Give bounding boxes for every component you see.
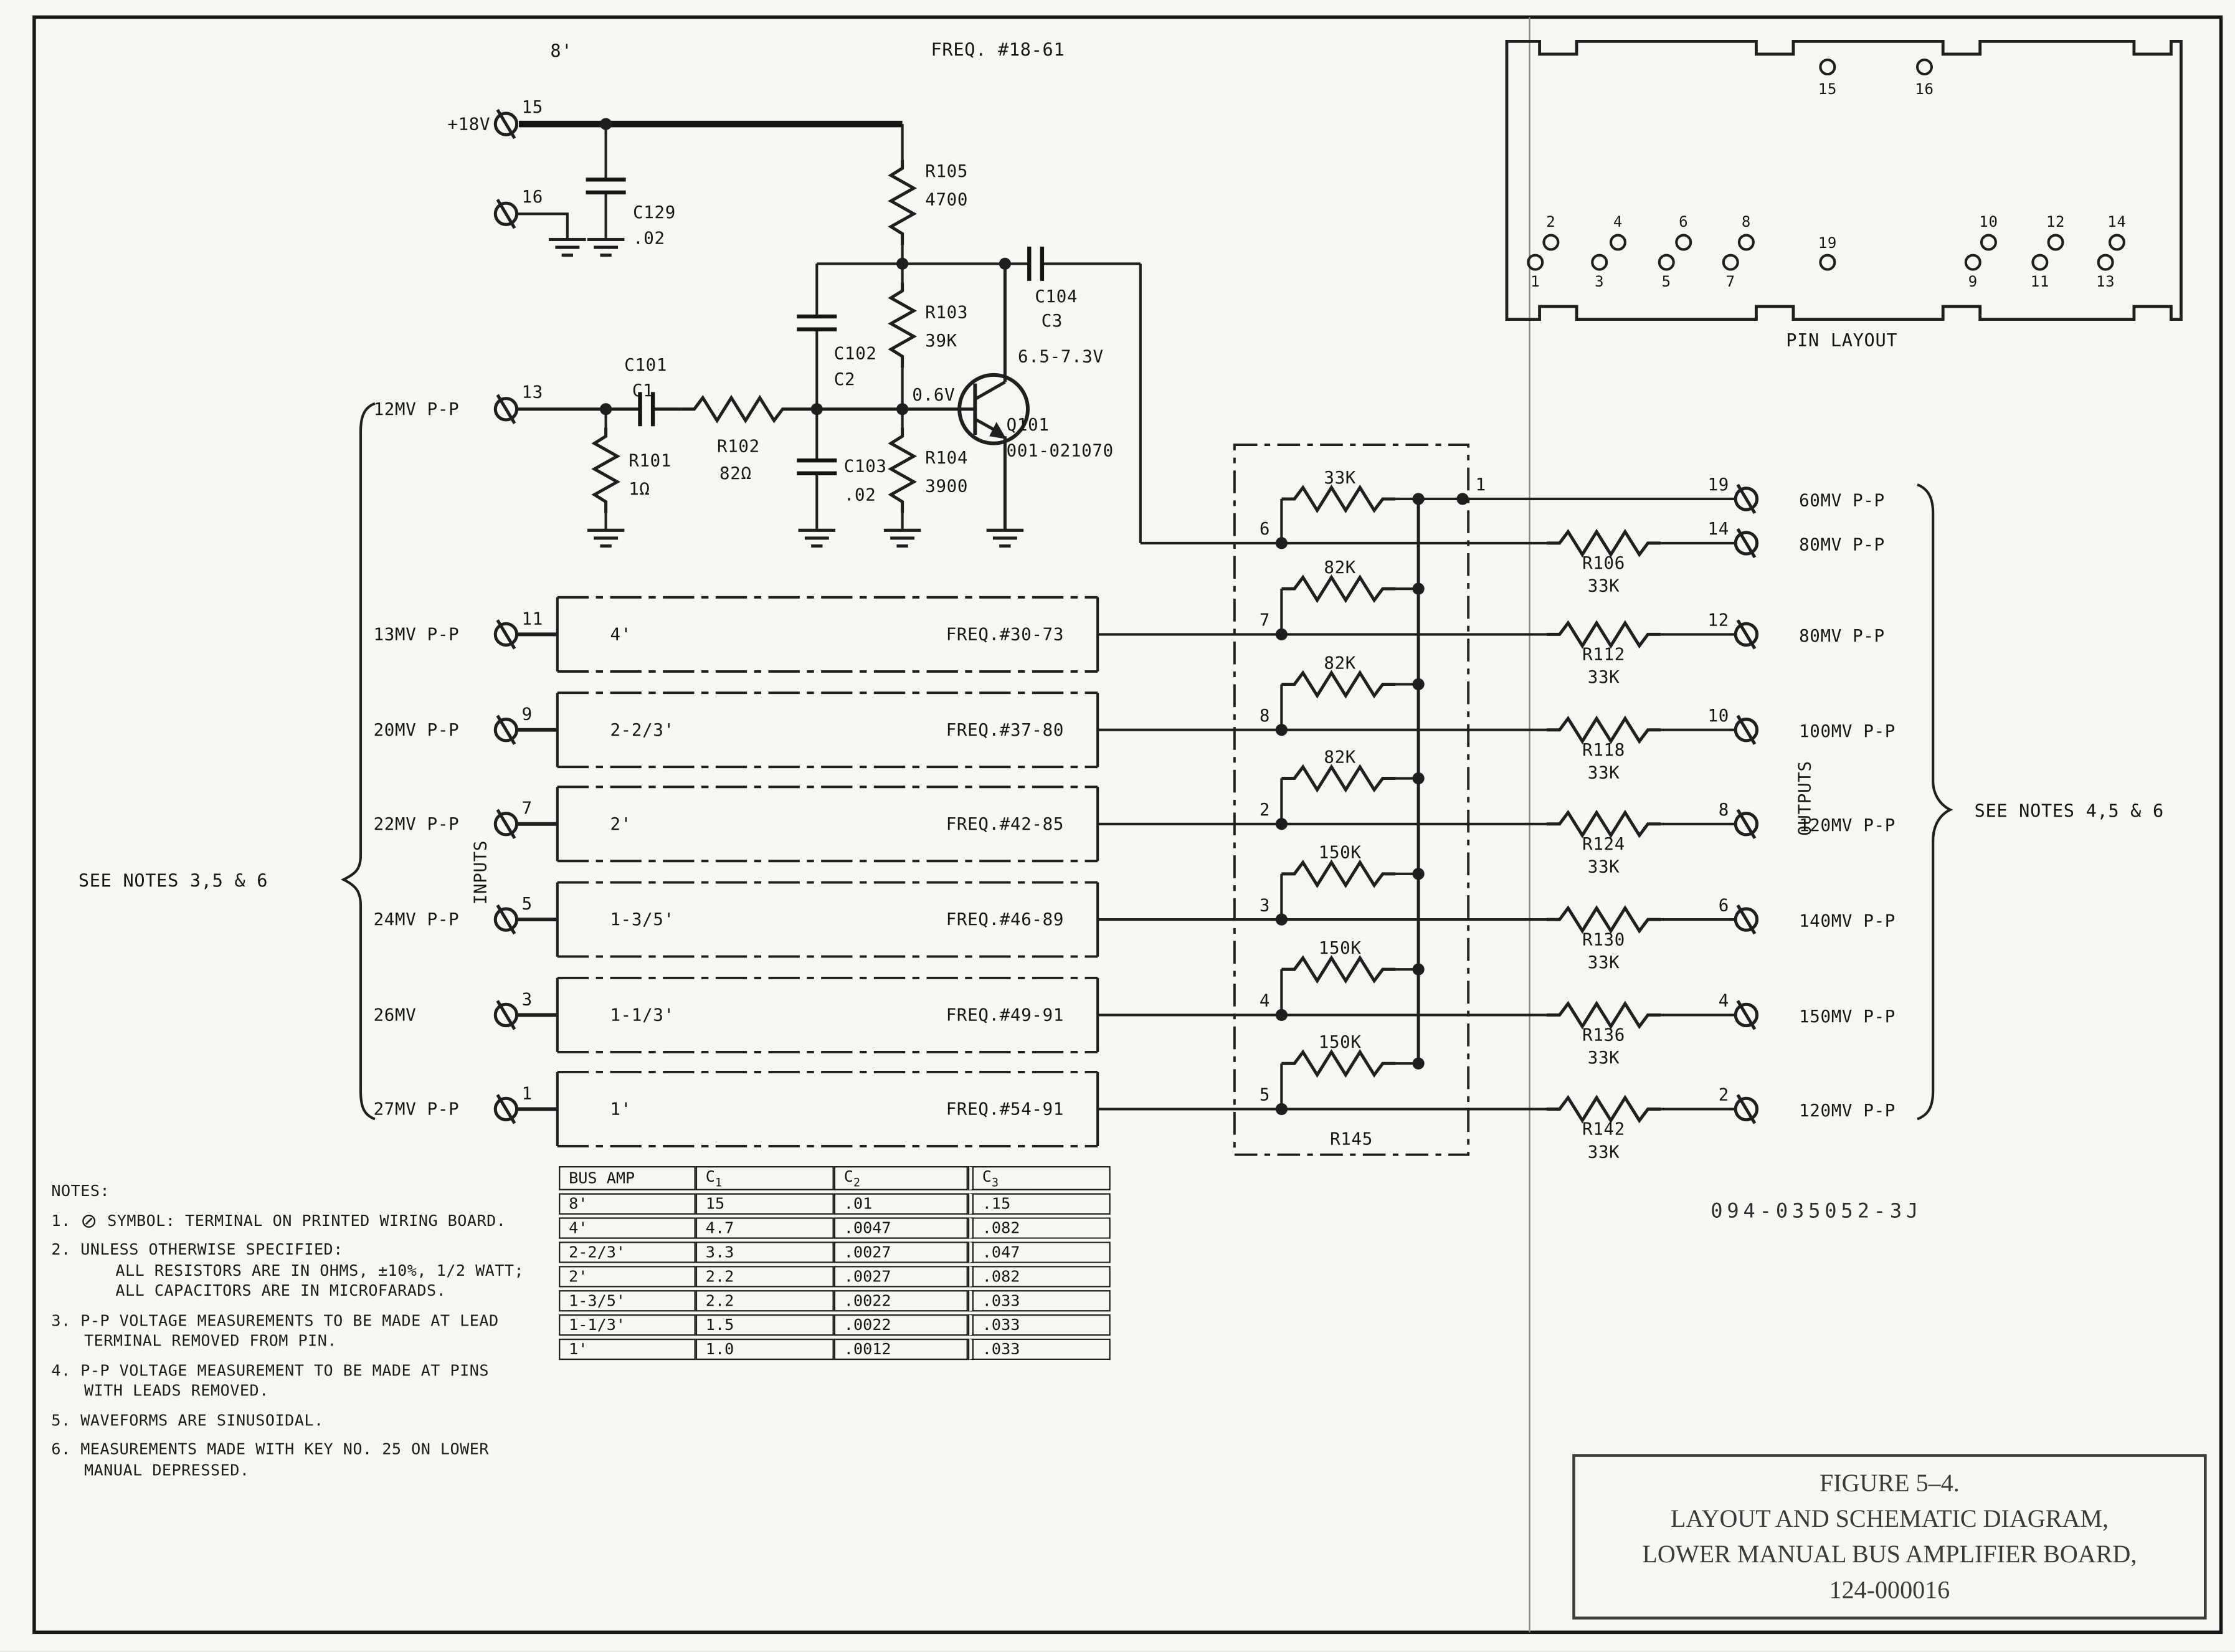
table-row: 1-3/5'2.2.0022.033 (559, 1291, 1111, 1312)
col-c3: C3 (968, 1166, 1111, 1190)
q101-vce-label: 6.5-7.3V (1018, 347, 1104, 366)
r103-resistor-icon (891, 282, 914, 368)
table-row: 2-2/3'3.3.0027.047 (559, 1242, 1111, 1263)
output-pin-number: 6 (1719, 896, 1729, 915)
capacitor-table: BUS AMP C1 C2 C3 8'15.01.15 4'4.7.0047.0… (559, 1163, 1111, 1363)
r102-resistor-icon (681, 397, 795, 420)
output-terminal-icon (1735, 1095, 1757, 1124)
c103-name: C103 (844, 457, 887, 476)
notes-heading: NOTES: (51, 1182, 553, 1202)
note-3-line: TERMINAL REMOVED FROM PIN. (84, 1331, 553, 1352)
output-r-value: 33K (1588, 1142, 1620, 1162)
bus-amp-feet-label: 2-2/3' (610, 721, 674, 740)
network-r-value: 82K (1324, 653, 1356, 673)
note-5: 5. WAVEFORMS ARE SINUSOIDAL. (51, 1410, 553, 1431)
pin-layout-caption: PIN LAYOUT (1786, 330, 1897, 351)
output-pin-number: 4 (1719, 992, 1729, 1011)
notes-block: NOTES: 1. ⊘ SYMBOL: TERMINAL ON PRINTED … (51, 1182, 553, 1489)
board-pin-number: 16 (1915, 80, 1934, 98)
input-mv-label: 24MV P-P (374, 910, 460, 929)
output-mv-label: 120MV P-P (1799, 1101, 1896, 1121)
c103-value: .02 (844, 485, 876, 505)
output-r-name: R118 (1582, 741, 1625, 760)
bus-amp-feet-label: 1' (610, 1100, 631, 1119)
network-resistor-icon (1281, 767, 1395, 790)
ground-icon (987, 530, 1024, 546)
output-mv-label: 80MV P-P (1799, 627, 1885, 646)
inputs-axis-label: INPUTS (471, 840, 490, 904)
board-pin-number: 4 (1613, 213, 1623, 230)
note-2-line: ALL CAPACITORS ARE IN MICROFARADS. (115, 1281, 553, 1302)
output-pin-number: 14 (1708, 520, 1729, 539)
r101-name: R101 (629, 451, 671, 470)
output-resistor-icon (1547, 532, 1661, 555)
terminal-pin15-icon (495, 110, 516, 138)
bus-8ft-label: 8' (550, 40, 572, 62)
inputs-see-notes: SEE NOTES 3,5 & 6 (78, 870, 268, 891)
table-row: 4'4.7.0047.082 (559, 1218, 1111, 1239)
output-resistor-icon (1547, 623, 1661, 646)
node-number: 5 (1260, 1086, 1270, 1105)
outputs: 19 60MV P-P 14 80MV P-P R106 33K 12 80MV… (1547, 475, 2164, 1162)
r105-value: 4700 (925, 191, 968, 210)
c102-value: C2 (834, 370, 855, 389)
note-1: 1. ⊘ SYMBOL: TERMINAL ON PRINTED WIRING … (51, 1211, 553, 1232)
node-number: 8 (1260, 706, 1270, 726)
pin16-number: 16 (522, 188, 543, 207)
input-mv-label: 26MV (374, 1006, 417, 1025)
network-resistor-icon (1281, 577, 1395, 601)
network-resistor-icon (1281, 488, 1395, 511)
r104-name: R104 (925, 449, 968, 468)
note-4-line: WITH LEADS REMOVED. (84, 1382, 553, 1402)
output-terminal-icon (1735, 485, 1757, 513)
input-mv-label: 27MV P-P (374, 1100, 460, 1119)
output-pin-number: 8 (1719, 800, 1729, 820)
bus-dot (1412, 678, 1424, 690)
col-bus-amp: BUS AMP (559, 1166, 696, 1190)
network-r-value: 150K (1319, 939, 1362, 958)
board-pin-number: 5 (1662, 273, 1671, 290)
board-pin-number: 9 (1968, 273, 1978, 290)
r101-value: 1Ω (629, 480, 650, 499)
schematic-page: 8' FREQ. #18-61 +18V 15 C129 .02 16 R105… (0, 0, 2235, 1651)
plus18v-label: +18V (447, 115, 490, 134)
input-pin-number: 3 (522, 990, 533, 1009)
network-r-value: 33K (1324, 468, 1356, 488)
note-4: 4. P-P VOLTAGE MEASUREMENT TO BE MADE AT… (51, 1360, 553, 1402)
pin-layout: 15 16 2 4 6 8 1 3 5 7 19 10 12 14 9 11 1… (1507, 41, 2181, 351)
ground-icon (884, 530, 921, 546)
output-r-name: R106 (1582, 554, 1625, 573)
r104-resistor-icon (891, 428, 914, 513)
r145-network: R145 6 33K 7 82K 8 82K 2 82K (1141, 445, 1737, 1155)
c101-value: C1 (632, 381, 653, 401)
table-row: 1'1.0.0012.033 (559, 1339, 1111, 1360)
output-pin-number: 12 (1708, 611, 1729, 630)
terminal-pin13-icon (495, 395, 516, 424)
output-pin-number: 19 (1708, 475, 1729, 495)
ground-icon (799, 530, 836, 546)
note-2-line: ALL RESISTORS ARE IN OHMS, ±10%, 1/2 WAT… (115, 1261, 553, 1281)
board-pin-number: 15 (1818, 80, 1837, 98)
c103-capacitor-icon (797, 460, 837, 473)
input-pin-number: 11 (522, 609, 543, 629)
input-terminal-icon (495, 905, 516, 934)
q101-emitter-arrow (989, 422, 1006, 439)
freq-18-61-label: FREQ. #18-61 (931, 39, 1065, 60)
board-pin-number: 11 (2031, 273, 2049, 290)
table-row: 1-1/3'1.5.0022.033 (559, 1314, 1111, 1336)
network-r-value: 82K (1324, 558, 1356, 577)
board-pin-number: 3 (1595, 273, 1604, 290)
input-terminal-icon (495, 620, 516, 648)
pin15-number: 15 (522, 98, 543, 117)
output-r-name: R142 (1582, 1120, 1625, 1139)
node-number: 6 (1260, 520, 1270, 539)
node-number: 4 (1260, 992, 1270, 1011)
col-c2: C2 (834, 1166, 968, 1190)
output-mv-label: 80MV P-P (1799, 535, 1885, 554)
note-4-line: 4. P-P VOLTAGE MEASUREMENT TO BE MADE AT… (51, 1360, 553, 1381)
output-r-name: R136 (1582, 1026, 1625, 1045)
col-c1: C1 (696, 1166, 834, 1190)
bus-amp-feet-label: 1-3/5' (610, 910, 674, 929)
output-terminal-icon (1735, 716, 1757, 744)
r101-resistor-icon (594, 428, 617, 513)
bus-dot (1412, 583, 1424, 595)
network-resistor-icon (1281, 1052, 1395, 1075)
bus-amp-feet-label: 1-1/3' (610, 1006, 674, 1025)
board-pin-number: 13 (2096, 273, 2115, 290)
table-row: 8'15.01.15 (559, 1194, 1111, 1215)
node-number: 3 (1260, 896, 1270, 915)
bus-amp-freq-label: FREQ.#54-91 (946, 1100, 1064, 1119)
network-r-value: 82K (1324, 748, 1356, 767)
c101-name: C101 (624, 356, 667, 375)
r103-name: R103 (925, 303, 968, 322)
table-header-row: BUS AMP C1 C2 C3 (559, 1166, 1111, 1190)
note-6-line: 6. MEASUREMENTS MADE WITH KEY NO. 25 ON … (51, 1440, 553, 1460)
input-row: 13MV P-P 11 4' FREQ.#30-73 (374, 597, 1547, 672)
note-1-number: 1. (51, 1211, 70, 1230)
input-mv-label: 13MV P-P (374, 625, 460, 645)
output-resistor-icon (1547, 1098, 1661, 1121)
figure-title-block: FIGURE 5–4. LAYOUT AND SCHEMATIC DIAGRAM… (1572, 1454, 2206, 1619)
document-number: 094-035052-3J (1711, 1200, 1922, 1223)
c102-name: C102 (834, 344, 877, 364)
network-r-value: 150K (1319, 843, 1362, 863)
output-resistor-icon (1547, 1004, 1661, 1027)
pin16-wire (518, 214, 567, 239)
output-pin-number: 2 (1719, 1086, 1729, 1105)
input-pin-number: 7 (522, 799, 533, 819)
figure-number: FIGURE 5–4. (1820, 1466, 1960, 1501)
terminal-pin16-icon (495, 199, 516, 228)
bus-dot (1412, 868, 1424, 880)
c104-value: C3 (1042, 311, 1063, 331)
output-mv-label: 100MV P-P (1799, 722, 1896, 741)
inputs-brace (344, 404, 375, 1119)
network-resistor-icon (1281, 863, 1395, 886)
node-number: 7 (1260, 611, 1270, 630)
output-mv-label: 140MV P-P (1799, 912, 1896, 931)
q101-part-number: 001-021070 (1007, 441, 1114, 460)
output-terminal-icon (1735, 529, 1757, 558)
board-pin-number: 1 (1530, 273, 1540, 290)
note-3: 3. P-P VOLTAGE MEASUREMENTS TO BE MADE A… (51, 1311, 553, 1352)
input-pin-number: 1 (522, 1084, 533, 1103)
node1-dot (1456, 493, 1468, 505)
output-r-value: 33K (1588, 764, 1620, 783)
bus-dot (1412, 964, 1424, 976)
input-pin-number: 9 (522, 705, 533, 724)
table-row: 2'2.2.0027.082 (559, 1266, 1111, 1288)
bus-dot (1412, 1058, 1424, 1070)
output-terminal-icon (1735, 905, 1757, 934)
output-terminal-icon (1735, 1001, 1757, 1030)
q101-name: Q101 (1007, 415, 1050, 435)
input-terminal-icon (495, 810, 516, 838)
c129-name: C129 (633, 203, 676, 222)
bus-amp-feet-label: 2' (610, 815, 631, 834)
board-pin-number: 14 (2107, 213, 2126, 230)
note-2: 2. UNLESS OTHERWISE SPECIFIED: ALL RESIS… (51, 1240, 553, 1303)
node-number: 2 (1260, 800, 1270, 820)
input-row: 22MV P-P 7 2' FREQ.#42-85 (374, 787, 1547, 861)
board-pin-number: 19 (1818, 234, 1837, 252)
note-3-line: 3. P-P VOLTAGE MEASUREMENTS TO BE MADE A… (51, 1311, 553, 1331)
c129-capacitor-icon (586, 179, 626, 192)
c104-capacitor-icon (1029, 247, 1042, 281)
ground-icon (549, 239, 586, 255)
bus-amp-feet-label: 4' (610, 625, 631, 645)
network-resistor-icon (1281, 673, 1395, 696)
board-pin-number: 10 (1979, 213, 1998, 230)
input-terminal-icon (495, 1001, 516, 1030)
output-pin-number: 10 (1708, 706, 1729, 726)
output-r-value: 33K (1588, 858, 1620, 877)
outputs-axis-label: OUTPUTS (1795, 761, 1815, 836)
input-mv-label: 20MV P-P (374, 721, 460, 740)
bus-amp-freq-label: FREQ.#30-73 (946, 625, 1064, 645)
output-resistor-icon (1547, 812, 1661, 835)
input-terminal-icon (495, 716, 516, 744)
r102-name: R102 (717, 437, 760, 456)
r105-name: R105 (925, 162, 968, 181)
output-r-name: R124 (1582, 835, 1625, 854)
board-pin-number: 8 (1742, 213, 1751, 230)
output-r-value: 33K (1588, 1048, 1620, 1068)
outputs-see-notes: SEE NOTES 4,5 & 6 (1975, 800, 2164, 821)
outputs-brace (1917, 485, 1950, 1119)
r103-value: 39K (925, 331, 957, 351)
input-row: 26MV 3 1-1/3' FREQ.#49-91 (374, 978, 1547, 1052)
bus-amp-freq-label: FREQ.#49-91 (946, 1006, 1064, 1025)
note-6: 6. MEASUREMENTS MADE WITH KEY NO. 25 ON … (51, 1440, 553, 1481)
board-outline (1507, 41, 2181, 319)
c102-capacitor-icon (797, 316, 837, 330)
input-12mv-label: 12MV P-P (374, 400, 460, 419)
c129-value: .02 (633, 229, 665, 248)
input-terminal-icon (495, 1095, 516, 1124)
pin13-number: 13 (522, 382, 543, 402)
r102-value: 82Ω (719, 464, 752, 483)
r105-resistor-icon (891, 159, 914, 245)
bus-amp-freq-label: FREQ.#42-85 (946, 815, 1064, 834)
output-r-value: 33K (1588, 577, 1620, 596)
output-r-name: R112 (1582, 645, 1625, 665)
board-pin-number: 2 (1546, 213, 1555, 230)
bus-amp-freq-label: FREQ.#46-89 (946, 910, 1064, 929)
ground-icon (587, 239, 625, 255)
network-r-value: 150K (1319, 1033, 1362, 1052)
output-r-name: R130 (1582, 930, 1625, 949)
output-mv-label: 60MV P-P (1799, 491, 1885, 510)
bus-amp-8ft: 8' FREQ. #18-61 +18V 15 C129 .02 16 R105… (374, 39, 1141, 546)
figure-part-number: 124-000016 (1829, 1572, 1950, 1608)
c104-name: C104 (1035, 287, 1078, 306)
output-r-value: 33K (1588, 953, 1620, 972)
output-terminal-icon (1735, 620, 1757, 648)
q101-vbe-label: 0.6V (912, 386, 955, 405)
node1-number: 1 (1476, 475, 1486, 495)
bus-dot (1412, 772, 1424, 784)
output-r-value: 33K (1588, 668, 1620, 687)
board-pin-number: 12 (2046, 213, 2065, 230)
board-pin-number: 6 (1679, 213, 1688, 230)
note-1-text: SYMBOL: TERMINAL ON PRINTED WIRING BOARD… (107, 1211, 506, 1230)
ground-icon (587, 530, 625, 546)
input-row: 20MV P-P 9 2-2/3' FREQ.#37-80 (374, 693, 1547, 767)
bus-amp-freq-label: FREQ.#37-80 (946, 721, 1064, 740)
network-resistor-icon (1281, 958, 1395, 981)
r104-value: 3900 (925, 477, 968, 496)
output-resistor-icon (1547, 718, 1661, 741)
input-pin-number: 5 (522, 895, 533, 914)
board-pin-number: 7 (1726, 273, 1735, 290)
note-2-line: 2. UNLESS OTHERWISE SPECIFIED: (51, 1240, 553, 1261)
r145-name: R145 (1330, 1130, 1373, 1149)
figure-title-line: LOWER MANUAL BUS AMPLIFIER BOARD, (1642, 1537, 2137, 1572)
output-mv-label: 150MV P-P (1799, 1007, 1896, 1027)
output-terminal-icon (1735, 810, 1757, 838)
input-mv-label: 22MV P-P (374, 815, 460, 834)
input-row: 24MV P-P 5 1-3/5' FREQ.#46-89 (374, 883, 1547, 957)
note-6-line: MANUAL DEPRESSED. (84, 1461, 553, 1481)
output-resistor-icon (1547, 908, 1661, 931)
figure-title-line: LAYOUT AND SCHEMATIC DIAGRAM, (1671, 1501, 2109, 1537)
terminal-symbol-icon: ⊘ (80, 1210, 97, 1233)
